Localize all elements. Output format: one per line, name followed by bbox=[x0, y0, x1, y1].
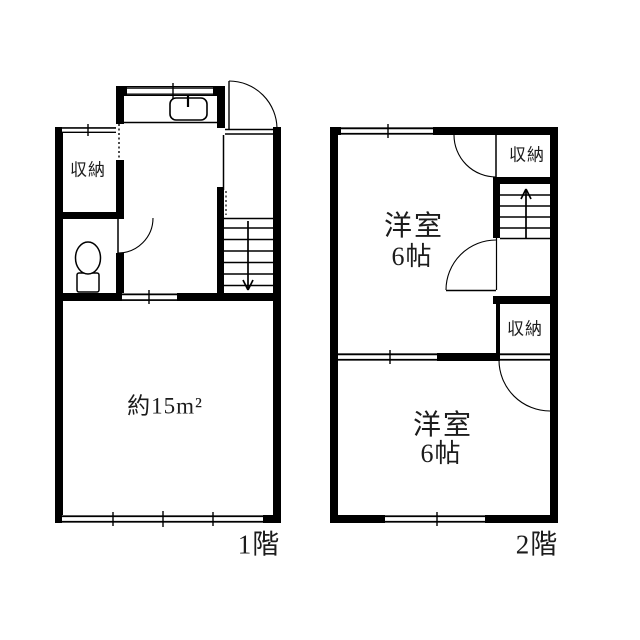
room-door-swing-icon bbox=[446, 238, 497, 291]
lower-room-door-swing-icon bbox=[499, 360, 550, 411]
floor1-walls bbox=[55, 86, 281, 523]
floor1-windows bbox=[62, 83, 263, 527]
closet-door-swing-icon bbox=[454, 135, 496, 177]
floor1-area-label: 約15m² bbox=[127, 395, 203, 418]
kitchen-sink-icon bbox=[124, 95, 217, 123]
toilet-door-swing-icon bbox=[118, 218, 153, 253]
floor2-storage-top-label: 収納 bbox=[509, 147, 545, 164]
floor2-room-bottom-name: 洋室 bbox=[413, 412, 473, 440]
floorplan-canvas: 収納 約15m² 1階 収納 収納 洋室 6帖 洋室 6帖 2階 bbox=[0, 0, 640, 640]
floor2-floor-label: 2階 bbox=[516, 532, 559, 559]
toilet-icon bbox=[76, 242, 101, 292]
floor2-room-top-size: 6帖 bbox=[391, 244, 432, 270]
entrance-door-swing-icon bbox=[225, 81, 277, 134]
floor1-storage-label: 収納 bbox=[70, 162, 106, 179]
floor1-floor-label: 1階 bbox=[238, 532, 281, 559]
floor2-room-bottom-size: 6帖 bbox=[420, 441, 461, 467]
floor1-plan bbox=[55, 81, 281, 527]
floor2-storage-middle-label: 収納 bbox=[507, 321, 543, 338]
stairs-up-icon bbox=[500, 189, 550, 239]
stairs-down-icon bbox=[224, 219, 273, 291]
floor2-room-top-name: 洋室 bbox=[384, 213, 444, 241]
